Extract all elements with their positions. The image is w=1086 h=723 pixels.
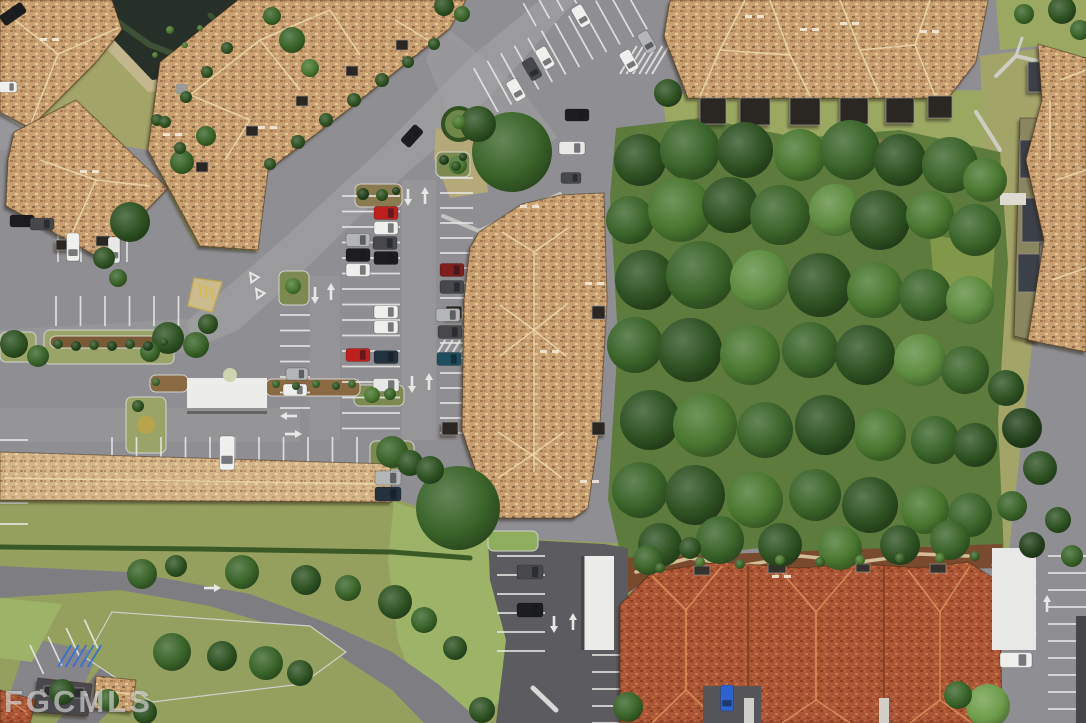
tree [997, 491, 1027, 521]
roof-vent [40, 38, 47, 41]
tree [207, 641, 237, 671]
car-windshield [360, 250, 366, 259]
tree [110, 202, 150, 242]
car-windshield [579, 111, 585, 119]
car [1000, 653, 1032, 668]
carport-canopy-south-shadow [581, 556, 585, 650]
stair-landing [1000, 193, 1026, 205]
tree [666, 241, 734, 309]
island-grass [488, 531, 538, 551]
car-windshield [388, 322, 394, 331]
shrub [1014, 4, 1034, 24]
car-body [1000, 653, 1032, 668]
tree [27, 345, 49, 367]
roof-vent [175, 133, 182, 136]
car-body [346, 249, 370, 262]
roof-vent [532, 205, 539, 208]
tree [847, 262, 903, 318]
shrub [196, 126, 216, 146]
shrub [357, 188, 369, 200]
car-windshield [299, 370, 304, 378]
car-windshield [450, 310, 456, 319]
shrub [53, 339, 63, 349]
tree [612, 462, 668, 518]
shrub [107, 341, 117, 351]
carport-canopy-west [187, 378, 267, 411]
car [346, 249, 370, 262]
roof-vent [585, 282, 592, 285]
tree [988, 370, 1024, 406]
car-body [346, 234, 370, 247]
townhouse-walk-2 [879, 698, 889, 723]
roof-vent [520, 205, 527, 208]
building-roof-top-right-outline [664, 0, 988, 98]
balcony [246, 126, 258, 136]
roof-vent [932, 30, 939, 33]
car [440, 281, 464, 294]
tree [795, 395, 855, 455]
tree [660, 120, 720, 180]
shrub [895, 553, 905, 563]
tree [730, 250, 790, 310]
tree [613, 692, 643, 722]
shrub [143, 341, 153, 351]
car-windshield [573, 174, 578, 181]
tree [874, 134, 926, 186]
car [30, 218, 54, 230]
shrub [347, 93, 361, 107]
roof-vent [52, 38, 59, 41]
car-body [437, 353, 461, 366]
tree [835, 325, 895, 385]
tree [696, 516, 744, 564]
shrub [735, 559, 745, 569]
shrub [137, 416, 155, 434]
car-body [438, 326, 462, 339]
shrub [439, 155, 449, 165]
tree [287, 660, 313, 686]
car-body [436, 309, 460, 322]
car-body [374, 207, 398, 220]
car-body [346, 264, 370, 277]
tree [614, 134, 666, 186]
tree [249, 646, 283, 680]
car [346, 349, 370, 362]
tree [788, 253, 852, 317]
aerial-photo [0, 0, 1086, 723]
roof-vent [757, 15, 764, 18]
car [375, 471, 401, 485]
tree [727, 472, 783, 528]
car-windshield [1019, 654, 1027, 665]
car [0, 82, 17, 93]
roof-vent [580, 480, 587, 483]
car-body [374, 351, 398, 364]
car-body [565, 109, 589, 121]
aerial-photo-viewport: FGCMLS [0, 0, 1086, 723]
shrub [312, 380, 320, 388]
balcony [840, 98, 868, 124]
roof-vent [592, 480, 599, 483]
tree [416, 456, 444, 484]
tree [1019, 532, 1045, 558]
tree [949, 204, 1001, 256]
shrub [301, 59, 319, 77]
shrub [182, 42, 188, 48]
car [375, 487, 401, 501]
tree [679, 537, 701, 559]
car-windshield [388, 352, 394, 361]
shrub [285, 278, 301, 294]
tree [443, 636, 467, 660]
shrub [402, 56, 414, 68]
shrub [855, 555, 865, 565]
roof-vent [784, 575, 791, 578]
car-windshield [68, 249, 77, 256]
tree [153, 633, 191, 671]
car-body [0, 82, 17, 93]
townhouse-walk-1 [744, 698, 754, 723]
shrub [159, 116, 171, 128]
tree [1061, 545, 1083, 567]
car-windshield [360, 350, 366, 359]
car-body [220, 436, 235, 470]
tree [665, 465, 725, 525]
carport-canopy-south [584, 556, 614, 650]
tree [606, 196, 654, 244]
tree [291, 565, 321, 595]
shrub [71, 341, 81, 351]
balcony [346, 66, 358, 76]
tree [673, 393, 737, 457]
shrub [174, 142, 186, 154]
shrub [221, 42, 233, 54]
tree [782, 322, 838, 378]
tree [335, 575, 361, 601]
carport-row-east [992, 548, 1036, 650]
roof-vent [840, 22, 847, 25]
region-worn-central-aisle [402, 180, 436, 440]
tree [789, 469, 841, 521]
shrub [375, 73, 389, 87]
tree [842, 477, 898, 533]
car [559, 142, 585, 155]
tree [127, 559, 157, 589]
car-body [30, 218, 54, 230]
roof-vent [270, 126, 277, 129]
balcony [442, 422, 458, 435]
roof-vent [92, 170, 99, 173]
car [220, 436, 235, 470]
roof-vent [258, 126, 265, 129]
carport-dark-strip [1076, 616, 1086, 723]
shrub [125, 339, 135, 349]
shrub [332, 382, 340, 390]
car-body [561, 173, 581, 184]
balcony [592, 422, 605, 435]
car-windshield [532, 567, 538, 577]
car-body [440, 281, 464, 294]
car-body [517, 565, 543, 579]
balcony [296, 96, 308, 106]
shrub [152, 378, 160, 386]
car [346, 234, 370, 247]
tree [702, 177, 758, 233]
car-body [374, 321, 398, 334]
shrub [452, 115, 466, 129]
roof-vent [772, 575, 779, 578]
shrub [775, 555, 785, 565]
shrub [89, 340, 99, 350]
car [374, 306, 398, 319]
tree [941, 346, 989, 394]
tree [820, 120, 880, 180]
roof-vent [597, 282, 604, 285]
car-body [67, 233, 80, 261]
car-body [346, 349, 370, 362]
tree [944, 681, 972, 709]
tree [946, 276, 994, 324]
car [374, 222, 398, 235]
shrub [132, 400, 144, 412]
tree [183, 332, 209, 358]
tree [911, 416, 959, 464]
car-windshield [9, 83, 13, 90]
tree [620, 390, 680, 450]
shrub [160, 338, 168, 346]
tree [899, 269, 951, 321]
car-windshield [574, 143, 580, 152]
car-windshield [388, 307, 394, 316]
tree [737, 402, 793, 458]
shrub [264, 158, 276, 170]
shrub [272, 380, 280, 388]
car-body [286, 368, 308, 380]
shrub [348, 380, 356, 388]
balcony [886, 98, 914, 123]
car-windshield [722, 700, 731, 706]
car [374, 321, 398, 334]
balcony [740, 98, 770, 125]
car-windshield [44, 220, 50, 228]
tree [963, 158, 1007, 202]
shrub [223, 368, 237, 382]
tree [411, 607, 437, 633]
shrub [152, 52, 158, 58]
tree [658, 318, 722, 382]
tree [750, 185, 810, 245]
roof-vent [852, 22, 859, 25]
tree [648, 178, 712, 242]
car [721, 685, 734, 711]
shrub [198, 314, 218, 334]
shrub [364, 387, 380, 403]
car [373, 237, 397, 250]
tree [906, 191, 954, 239]
car [440, 264, 464, 277]
car [437, 353, 461, 366]
shrub [451, 161, 461, 171]
roof-vent [920, 30, 927, 33]
shrub [655, 563, 665, 573]
tree [894, 334, 946, 386]
shrub [319, 113, 333, 127]
tree [717, 122, 773, 178]
car-windshield [388, 208, 394, 217]
car [374, 207, 398, 220]
tree [469, 697, 495, 723]
tree [953, 423, 997, 467]
roof-vent [800, 28, 807, 31]
car-windshield [221, 456, 232, 464]
shrub [166, 26, 174, 34]
roof-vent [812, 28, 819, 31]
shrub [695, 557, 705, 567]
balcony [196, 162, 208, 172]
car-body [374, 306, 398, 319]
car [346, 264, 370, 277]
car-body [375, 487, 401, 501]
car-windshield [388, 253, 394, 262]
shrub [384, 388, 396, 400]
tree [279, 27, 305, 53]
roof-vent [163, 133, 170, 136]
tree [930, 520, 970, 560]
car-windshield [24, 217, 30, 225]
watermark-text: FGCMLS [4, 684, 153, 720]
balcony [396, 40, 408, 50]
car [67, 233, 80, 261]
car [438, 326, 462, 339]
shrub [454, 6, 470, 22]
car [374, 252, 398, 265]
carport-canopy-west-shadow [187, 408, 267, 414]
shrub [428, 38, 440, 50]
car [565, 109, 589, 121]
shrub [263, 7, 281, 25]
balcony [694, 566, 710, 575]
car-windshield [360, 265, 366, 274]
shrub [201, 66, 213, 78]
tree [850, 190, 910, 250]
car-body [373, 237, 397, 250]
car-windshield [390, 489, 396, 499]
car [517, 565, 543, 579]
tree [720, 325, 780, 385]
tree [0, 330, 28, 358]
shrub [291, 135, 305, 149]
tree [378, 585, 412, 619]
tree [1002, 408, 1042, 448]
car [517, 603, 543, 617]
roof-vent [80, 170, 87, 173]
tree [654, 79, 682, 107]
car-body [375, 471, 401, 485]
car-windshield [390, 473, 396, 483]
car [286, 368, 308, 380]
balcony [592, 306, 605, 319]
tree [774, 129, 826, 181]
car-body [374, 222, 398, 235]
shrub [376, 189, 388, 201]
shrub [970, 551, 980, 561]
roof-vent [745, 15, 752, 18]
tree [854, 409, 906, 461]
balcony [856, 564, 870, 572]
roof-vent [552, 350, 559, 353]
car-windshield [454, 282, 460, 291]
tree [1045, 507, 1071, 533]
shrub [180, 91, 192, 103]
car-body [517, 603, 543, 617]
car-windshield [532, 605, 538, 615]
shrub [292, 382, 300, 390]
balcony [790, 98, 820, 125]
car [561, 173, 581, 184]
shrub [935, 553, 945, 563]
car-windshield [454, 265, 460, 274]
car-body [559, 142, 585, 155]
tree [93, 247, 115, 269]
shrub [197, 25, 203, 31]
car-body [721, 685, 734, 711]
balcony [700, 98, 726, 124]
shrub [815, 557, 825, 567]
shrub [459, 153, 467, 161]
shrub [109, 269, 127, 287]
car [374, 351, 398, 364]
car-body [440, 264, 464, 277]
shrub [392, 187, 400, 195]
balcony [930, 564, 946, 573]
balcony [928, 96, 952, 118]
car-windshield [451, 354, 457, 363]
car-windshield [387, 238, 393, 247]
tree [615, 250, 675, 310]
car-windshield [452, 327, 458, 336]
car-body [374, 252, 398, 265]
tree [165, 555, 187, 577]
roof-vent [540, 350, 547, 353]
tree [1023, 451, 1057, 485]
car-windshield [388, 223, 394, 232]
car-windshield [360, 235, 366, 244]
tree [607, 317, 663, 373]
tree [225, 555, 259, 589]
car [436, 309, 460, 322]
